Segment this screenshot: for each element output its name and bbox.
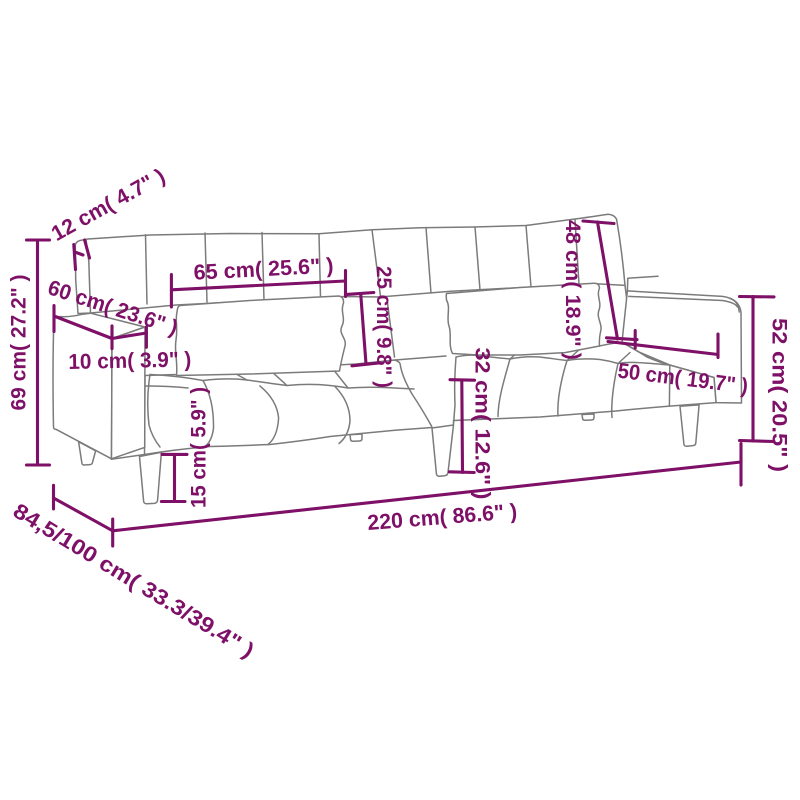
svg-text:52 cm( 20.5" ): 52 cm( 20.5" )	[768, 318, 792, 472]
svg-text:220 cm( 86.6" ): 220 cm( 86.6" )	[367, 499, 518, 535]
svg-text:48 cm( 18.9" ): 48 cm( 18.9" )	[561, 220, 585, 360]
svg-text:69 cm( 27.2" ): 69 cm( 27.2" )	[7, 275, 31, 411]
svg-text:10 cm( 3.9" ): 10 cm( 3.9" )	[68, 347, 191, 374]
svg-text:32 cm( 12.6" ): 32 cm( 12.6" )	[471, 348, 495, 500]
svg-text:15 cm( 5.9" ): 15 cm( 5.9" )	[187, 387, 211, 508]
svg-text:84,5/100 cm( 33.3/39.4" ): 84,5/100 cm( 33.3/39.4" )	[9, 499, 258, 663]
svg-text:25 cm( 9.8" ): 25 cm( 9.8" )	[372, 266, 396, 388]
svg-text:12 cm( 4.7" ): 12 cm( 4.7" )	[47, 164, 169, 246]
